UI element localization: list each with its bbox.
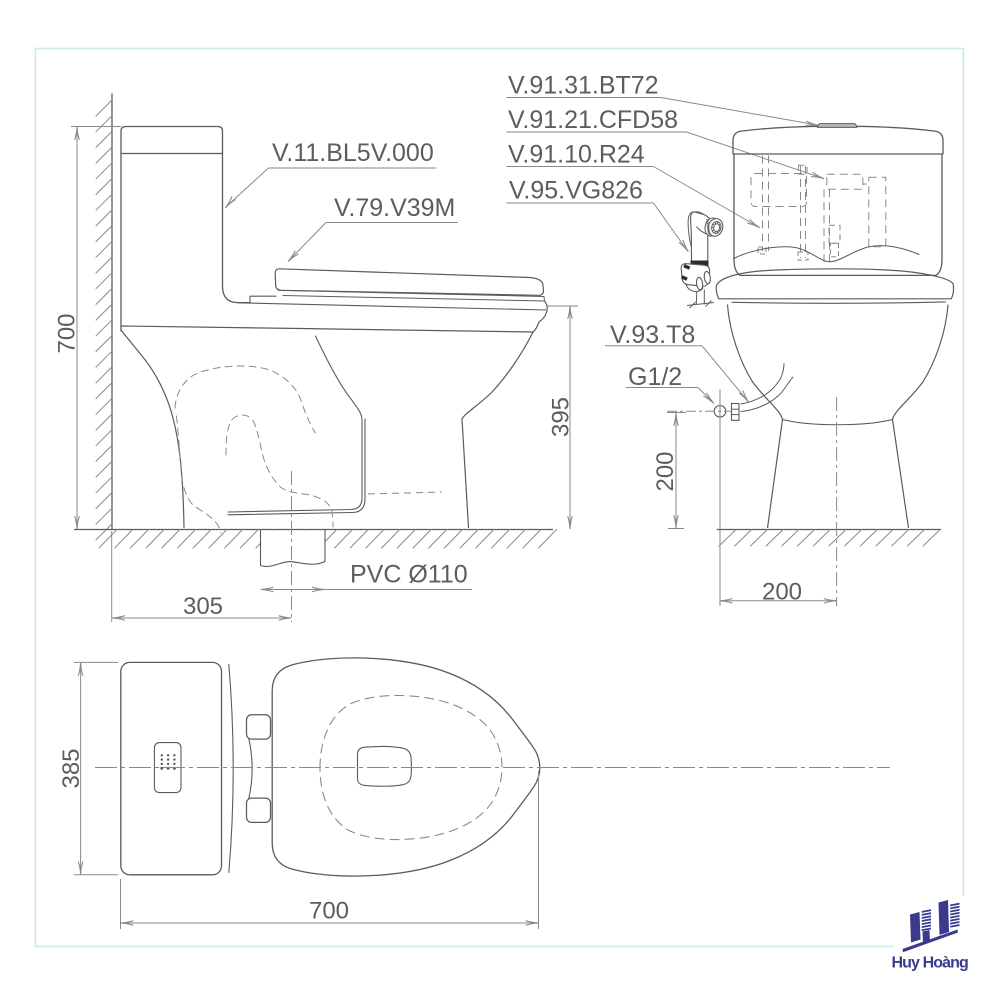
svg-text:V.91.31.BT72: V.91.31.BT72 xyxy=(508,72,659,100)
svg-text:V.91.21.CFD58: V.91.21.CFD58 xyxy=(508,106,678,134)
svg-text:200: 200 xyxy=(652,451,679,491)
svg-text:385: 385 xyxy=(58,748,85,788)
svg-text:V.79.V39M: V.79.V39M xyxy=(334,194,455,222)
svg-text:PVC Ø110: PVC Ø110 xyxy=(350,561,468,589)
svg-text:V.91.10.R24: V.91.10.R24 xyxy=(508,141,645,169)
svg-text:395: 395 xyxy=(548,397,575,437)
svg-text:200: 200 xyxy=(762,579,802,606)
svg-text:305: 305 xyxy=(183,593,223,620)
svg-text:G1/2: G1/2 xyxy=(628,363,682,391)
svg-text:700: 700 xyxy=(309,898,349,925)
svg-text:Huy Hoàng: Huy Hoàng xyxy=(892,955,968,972)
svg-text:700: 700 xyxy=(54,313,81,353)
svg-text:V.93.T8: V.93.T8 xyxy=(610,321,695,349)
svg-text:V.95.VG826: V.95.VG826 xyxy=(509,177,643,205)
svg-text:V.11.BL5V.000: V.11.BL5V.000 xyxy=(272,139,434,167)
